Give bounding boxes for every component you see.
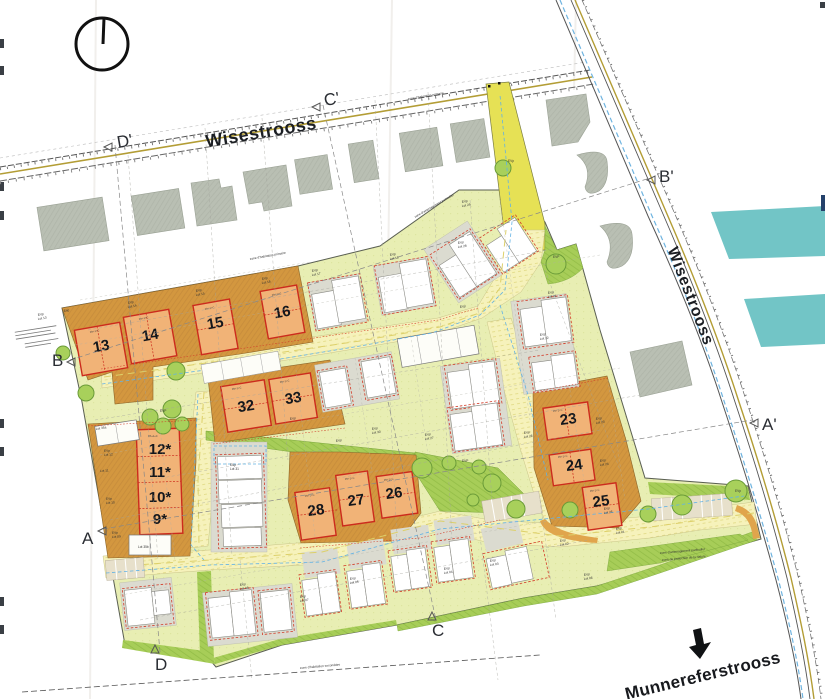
svg-text:A: A — [82, 529, 94, 548]
svg-text:11*: 11* — [149, 464, 171, 481]
svg-text:B': B' — [659, 167, 674, 186]
svg-text:24: 24 — [565, 456, 585, 475]
svg-text:13: 13 — [92, 337, 111, 357]
svg-text:26: 26 — [385, 484, 404, 503]
svg-text:EVP: EVP — [160, 409, 166, 413]
svg-text:10*: 10* — [149, 489, 172, 506]
svg-text:27: 27 — [347, 491, 366, 510]
svg-text:D': D' — [115, 131, 134, 152]
svg-text:Lot 12: Lot 12 — [104, 452, 113, 457]
svg-text:Lot 10: Lot 10 — [106, 500, 115, 505]
svg-text:28: 28 — [307, 501, 326, 520]
svg-text:12*: 12* — [149, 441, 172, 458]
svg-text:EVP: EVP — [462, 459, 468, 463]
svg-text:Lot 09: Lot 09 — [112, 534, 121, 539]
svg-text:A': A' — [762, 415, 777, 434]
svg-text:23: 23 — [559, 410, 578, 429]
svg-text:B: B — [52, 351, 63, 370]
svg-text:EVP: EVP — [553, 255, 559, 259]
svg-text:32: 32 — [237, 397, 256, 416]
svg-text:16: 16 — [273, 303, 292, 323]
svg-text:Lot 11: Lot 11 — [100, 468, 109, 473]
svg-text:D: D — [155, 655, 167, 674]
svg-text:Lot 35b: Lot 35b — [138, 545, 149, 549]
svg-text:Lot 31: Lot 31 — [230, 467, 239, 471]
svg-text:EVp: EVp — [508, 159, 514, 163]
svg-text:EVp: EVp — [735, 489, 741, 493]
svg-text:C': C' — [322, 89, 341, 110]
svg-text:Rh+1+C: Rh+1+C — [148, 434, 158, 438]
svg-text:C: C — [432, 621, 444, 640]
